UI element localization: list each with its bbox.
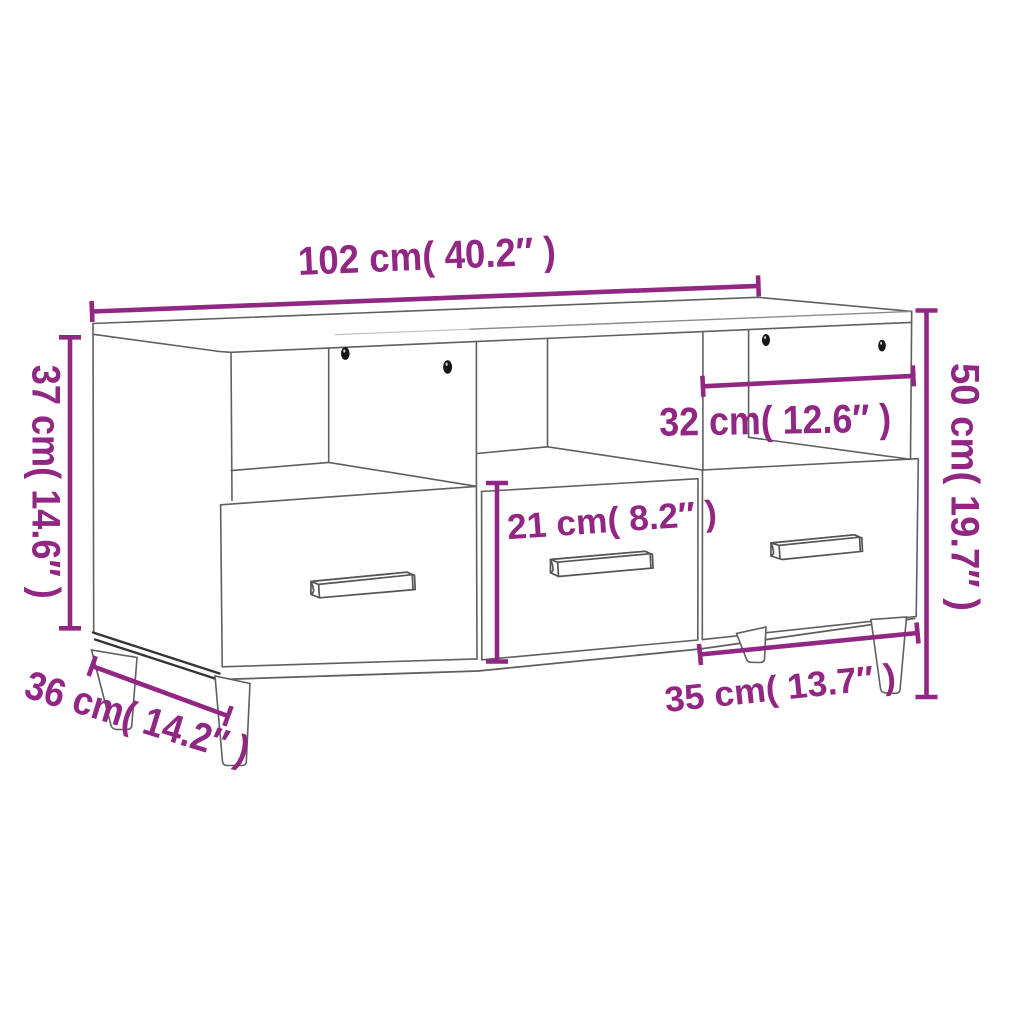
- svg-text:37 cm( 14.6″ ): 37 cm( 14.6″ ): [24, 365, 68, 599]
- svg-text:50 cm( 19.7″ ): 50 cm( 19.7″ ): [943, 363, 987, 611]
- svg-text:32 cm( 12.6″ ): 32 cm( 12.6″ ): [659, 397, 892, 445]
